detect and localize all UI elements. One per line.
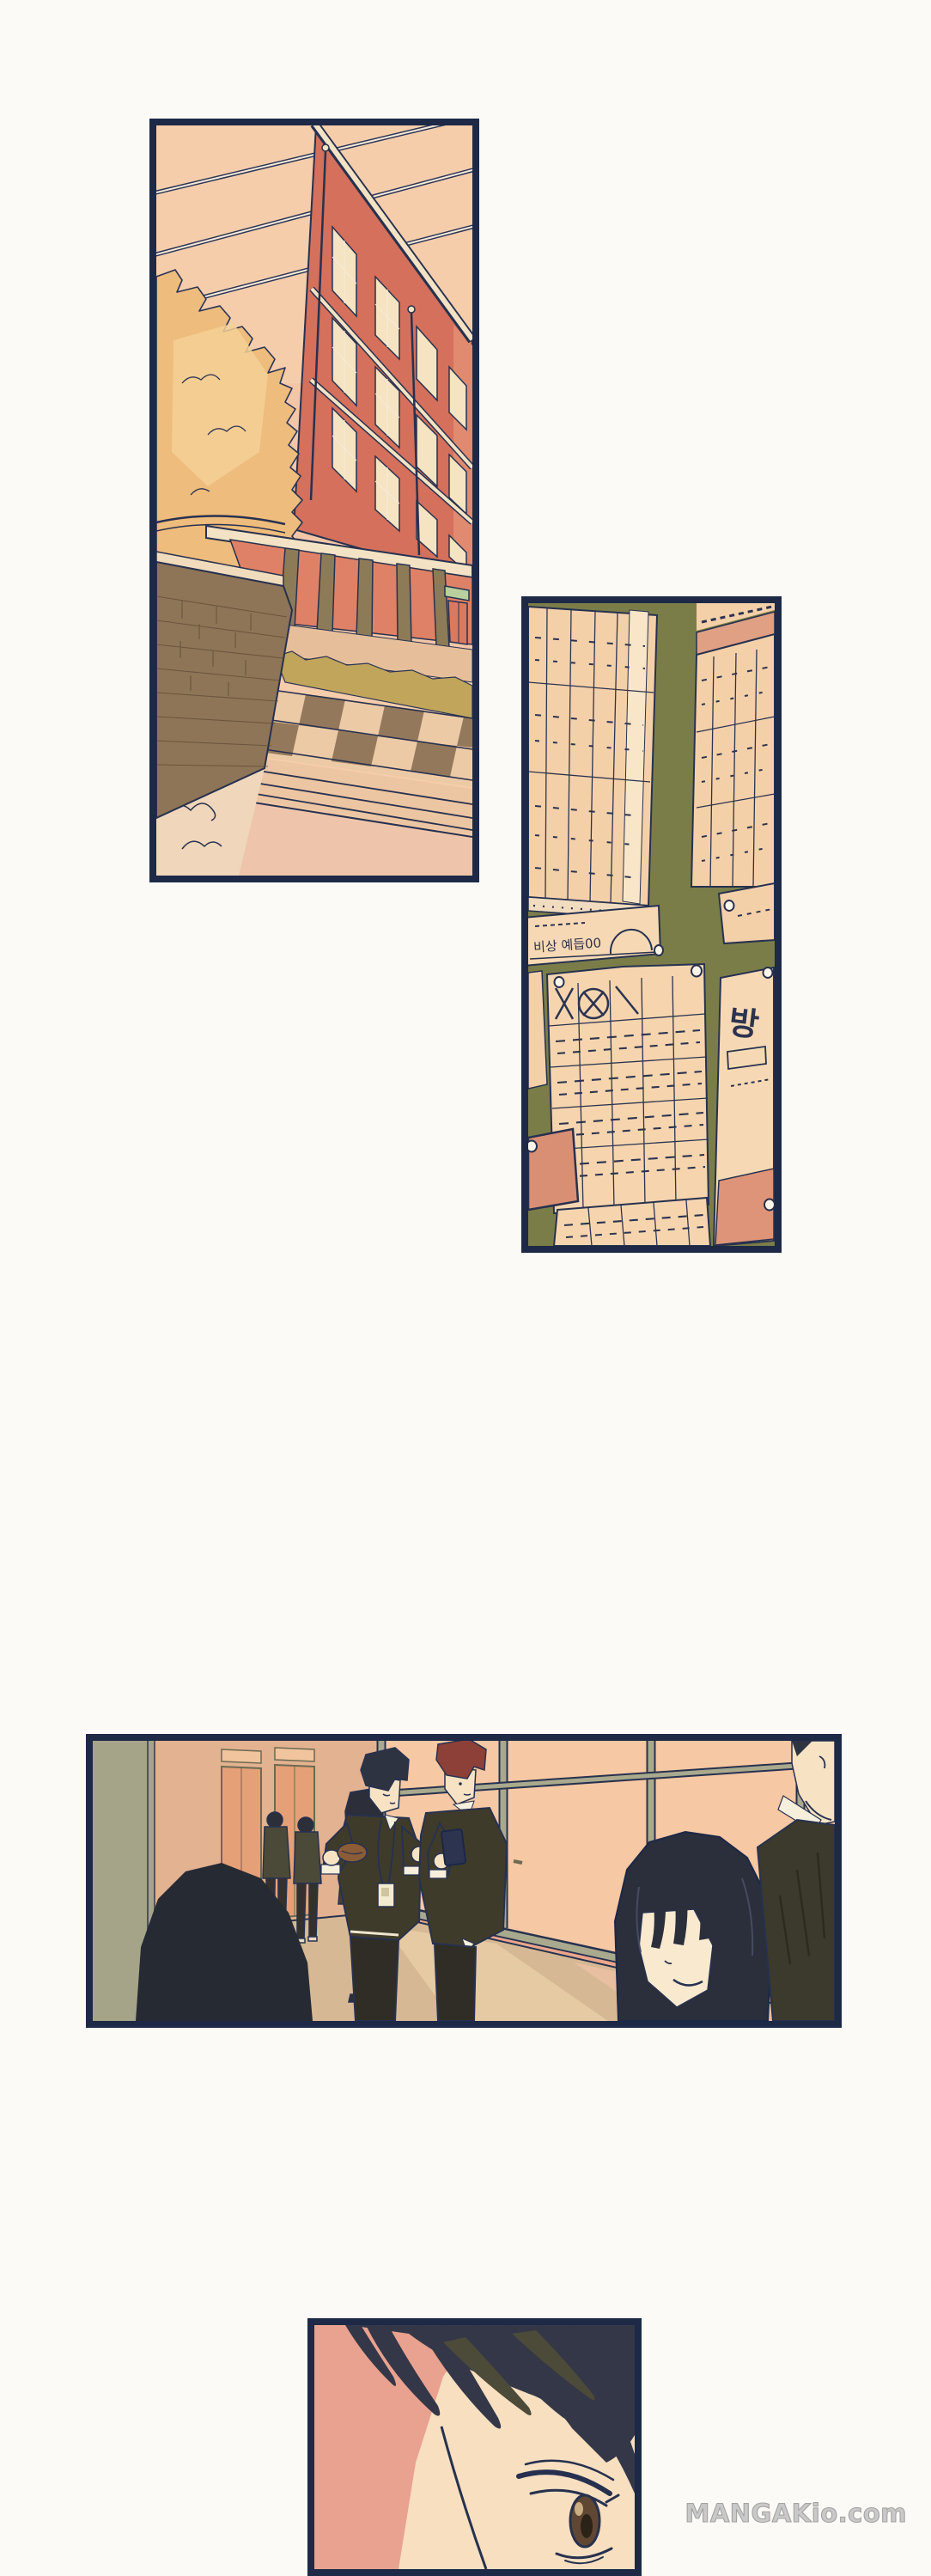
timetable-sheet-right	[691, 603, 775, 887]
entrance-door	[448, 601, 467, 644]
tall-poster: 방	[714, 968, 775, 1246]
sticky-note	[528, 1129, 578, 1210]
poster-char-text: 방	[727, 1003, 761, 1044]
panel-hallway	[86, 1734, 842, 2028]
pupil	[581, 2514, 593, 2538]
pin	[654, 945, 663, 955]
small-paper-right	[719, 883, 775, 943]
timetable-sheet-left	[528, 607, 657, 919]
foreground-girl-head	[615, 1832, 771, 2021]
smartphone	[441, 1829, 466, 1866]
panel-bulletin-board: 비상 예듭00	[521, 596, 782, 1253]
panel-school-exterior	[149, 119, 479, 882]
panel-eye-closeup	[307, 2318, 642, 2576]
comic-page: 비상 예듭00	[0, 0, 931, 2576]
site-watermark-text: MANGAKio.com	[685, 2499, 907, 2528]
